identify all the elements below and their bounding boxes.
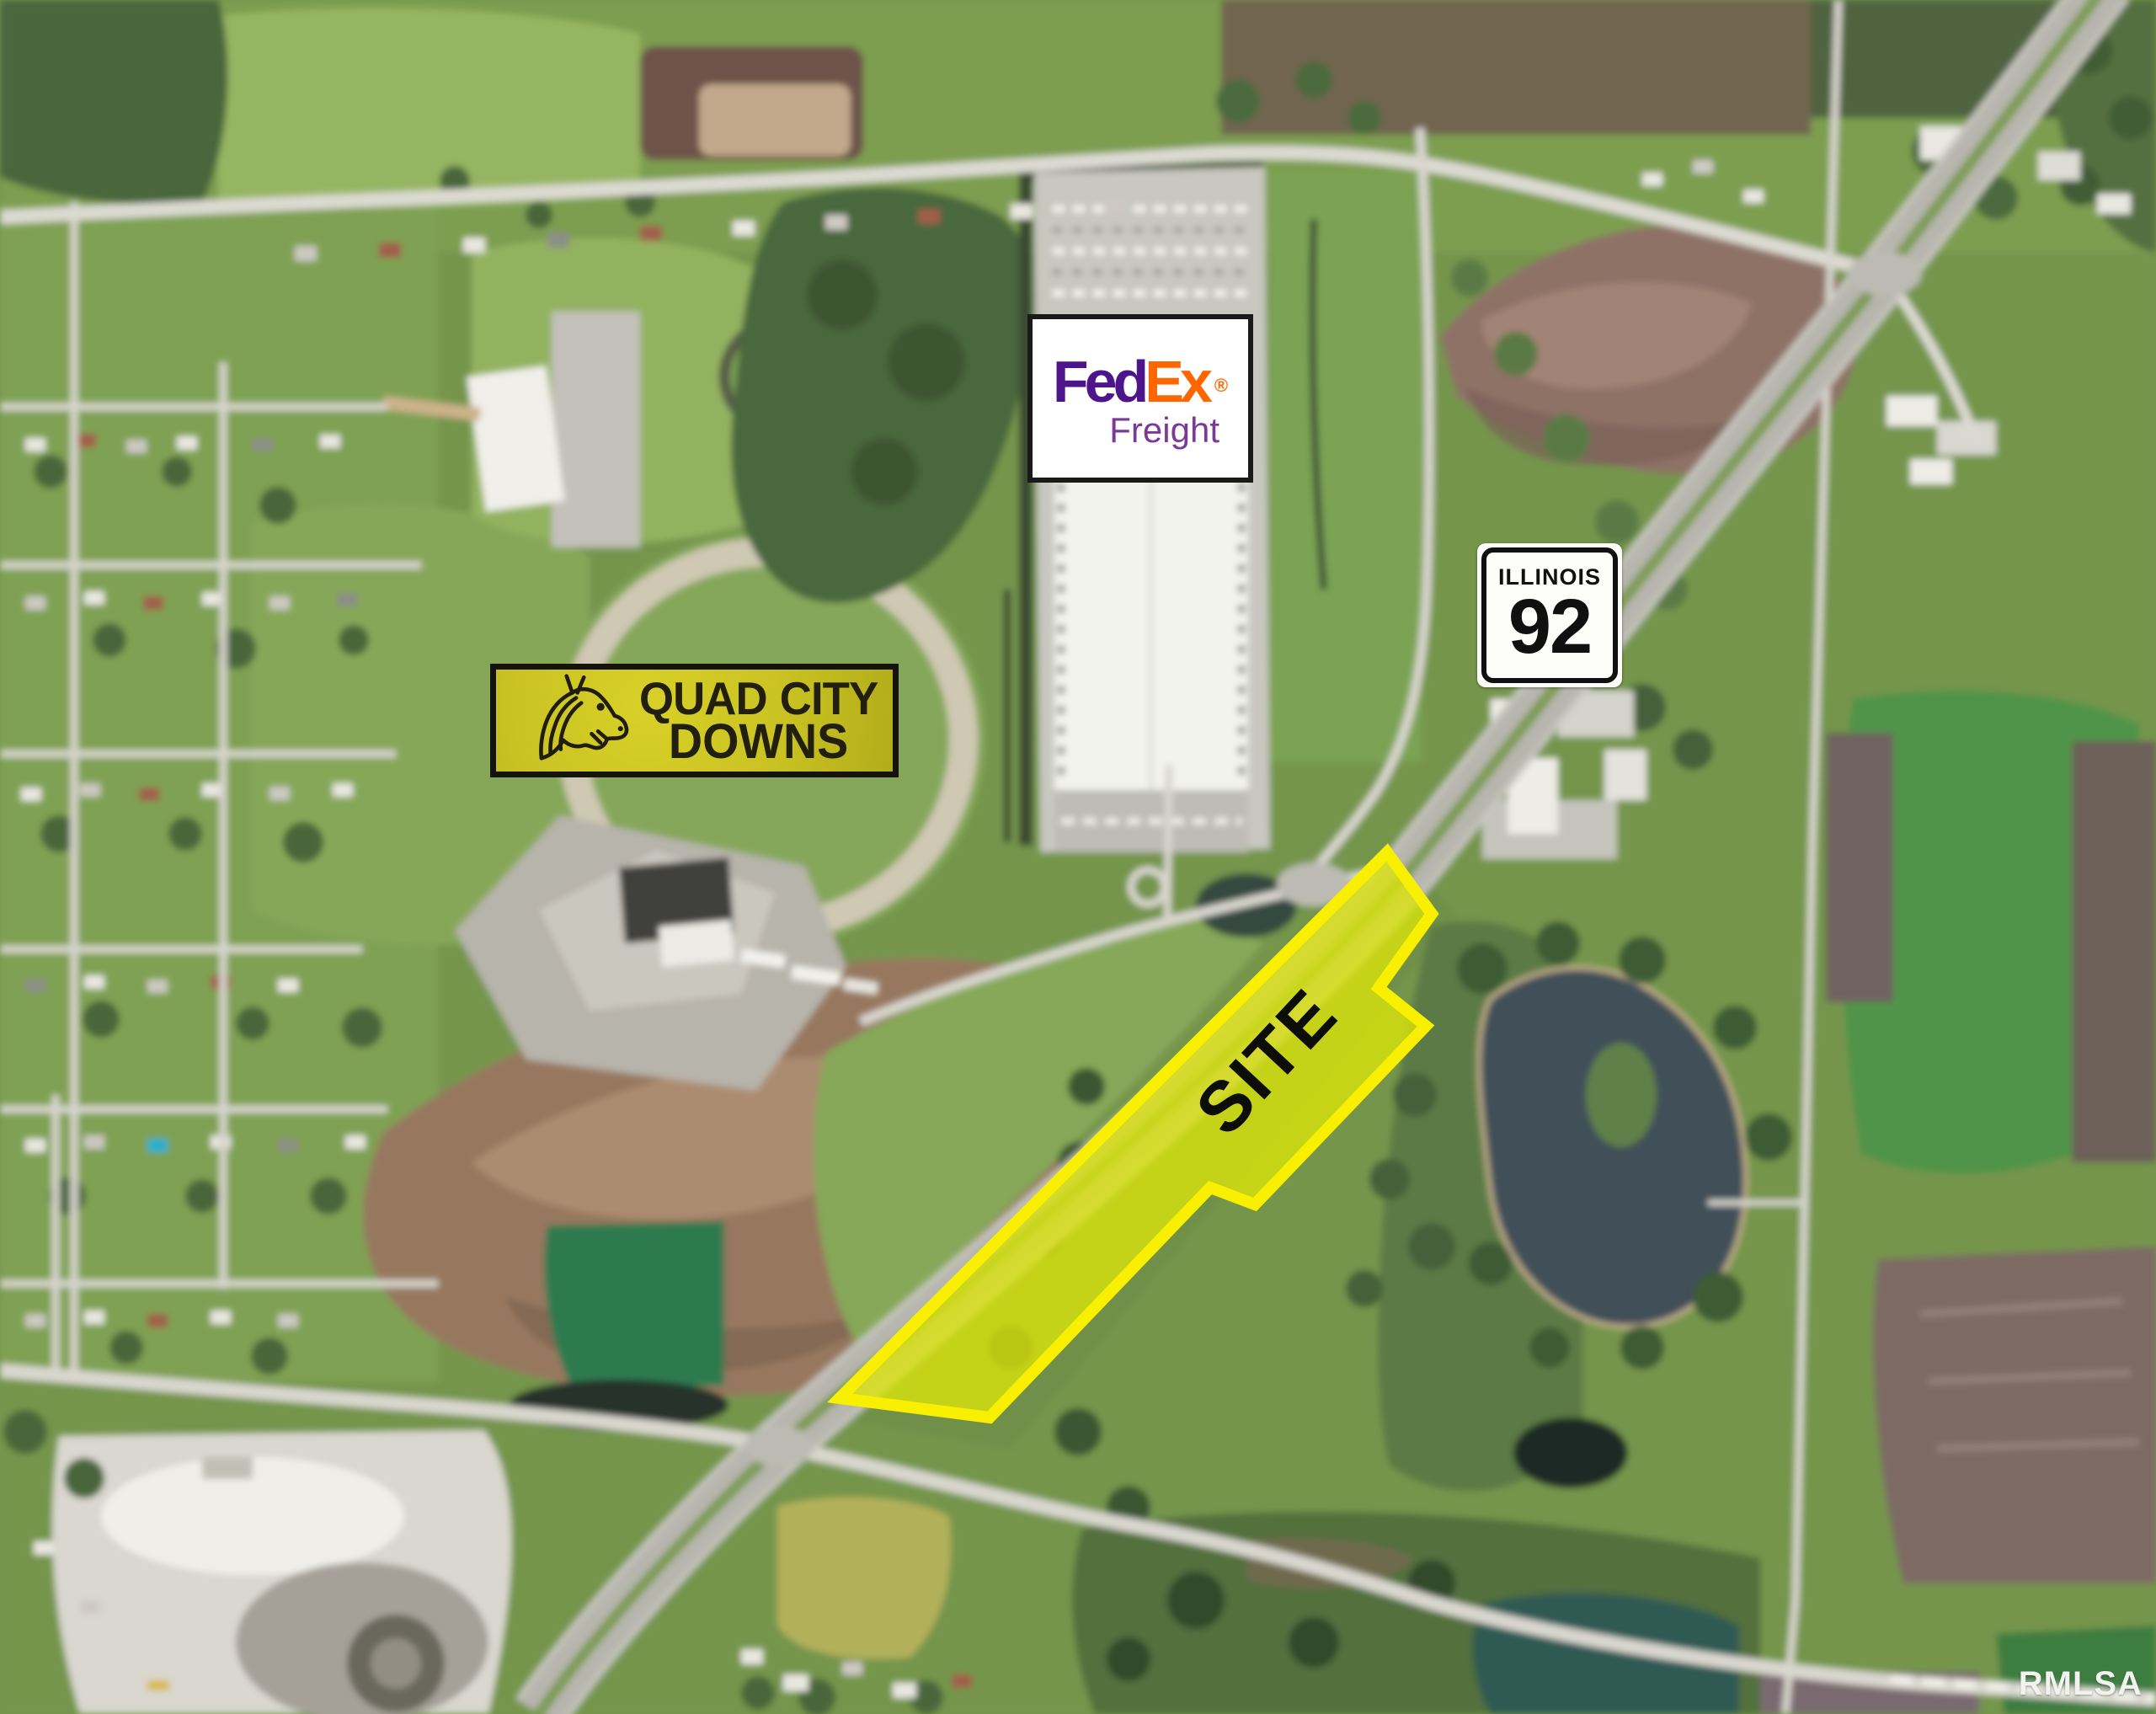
fedex-freight-label: Freight — [1033, 411, 1248, 450]
registered-mark-icon: ® — [1214, 375, 1228, 396]
fedex-logo-ex: Ex — [1145, 349, 1209, 414]
fedex-logo-fed: Fed — [1053, 349, 1145, 414]
route-shield-number: 92 — [1508, 590, 1591, 664]
horse-head-icon — [498, 670, 639, 772]
quad-city-downs-sign: QUAD CITY DOWNS — [490, 664, 899, 777]
site-overlay: SITE — [0, 0, 2156, 1714]
rmlsa-watermark: RMLSA — [2019, 1665, 2143, 1703]
route-shield-inner: ILLINOIS 92 — [1481, 547, 1618, 683]
site-highlight-polygon — [840, 852, 1432, 1418]
illinois-92-route-shield: ILLINOIS 92 — [1477, 543, 1622, 687]
aerial-listing-map: SITE QUAD CITY DOWNS F — [0, 0, 2156, 1714]
track-sign-word-downs: DOWNS — [639, 718, 878, 765]
fedex-logo: FedEx® — [1033, 352, 1248, 411]
fedex-freight-sign: FedEx® Freight — [1027, 314, 1253, 483]
track-sign-text: QUAD CITY DOWNS — [639, 676, 878, 765]
